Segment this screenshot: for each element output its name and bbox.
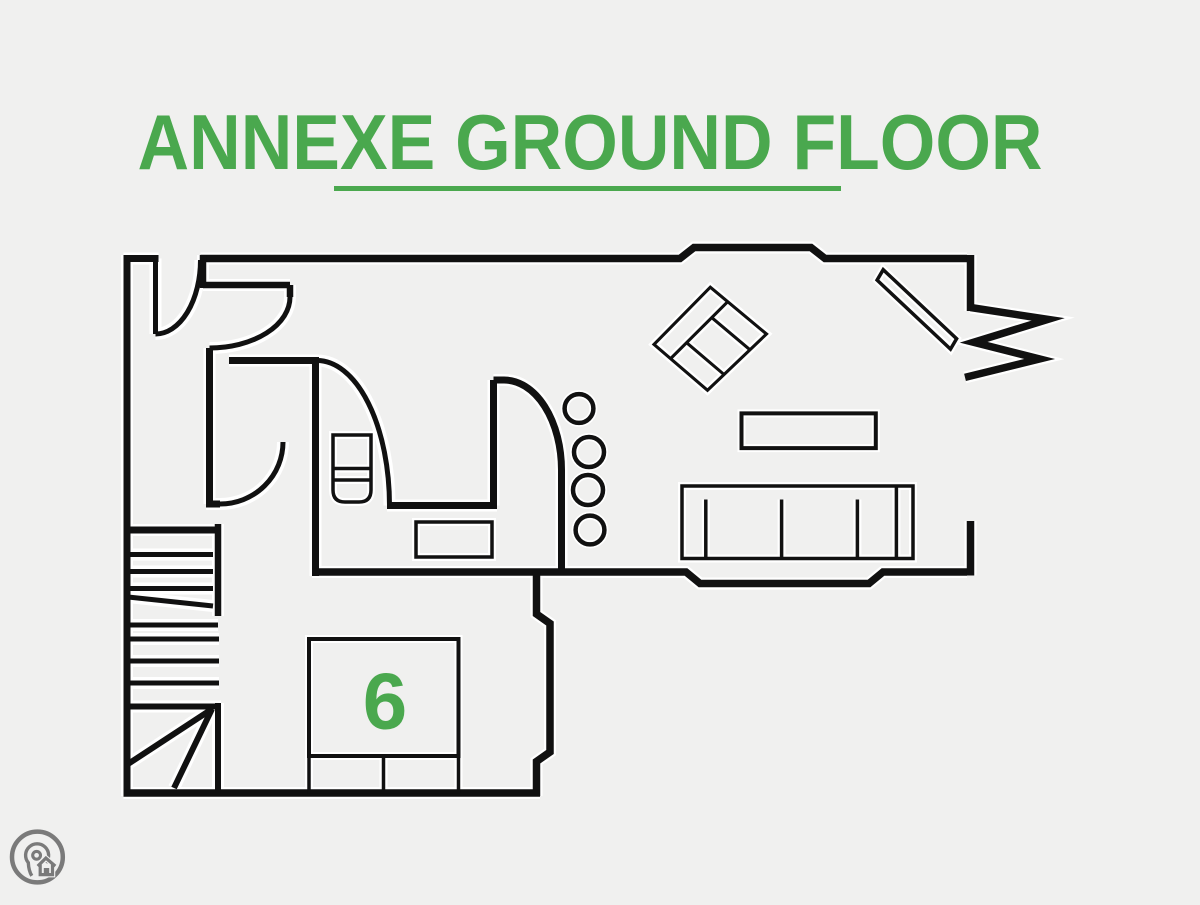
svg-text:ANNEXE GROUND FLOOR: ANNEXE GROUND FLOOR (138, 98, 1043, 186)
svg-text:6: 6 (363, 657, 408, 746)
